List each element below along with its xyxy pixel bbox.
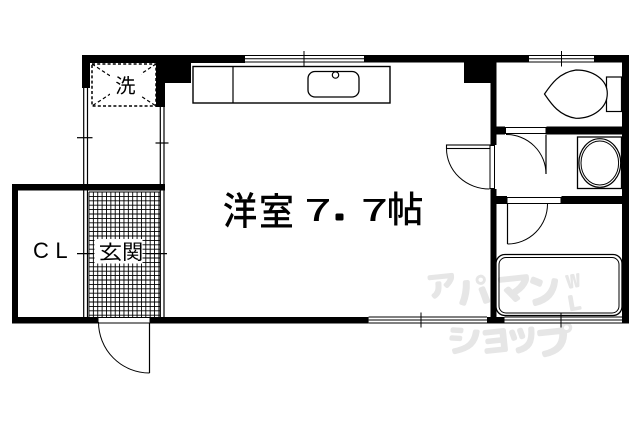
svg-text:CL: CL — [33, 238, 74, 263]
